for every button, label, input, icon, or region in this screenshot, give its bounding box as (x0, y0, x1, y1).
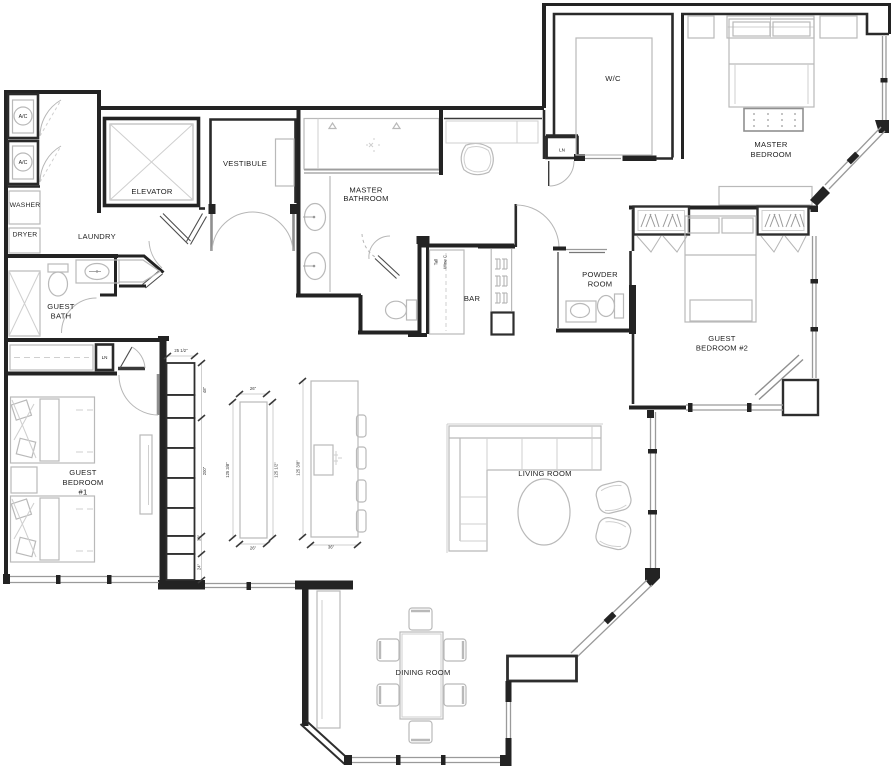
svg-text:26": 26" (250, 386, 257, 391)
svg-text:BATH: BATH (51, 312, 72, 321)
svg-text:MASTER: MASTER (754, 140, 787, 149)
svg-text:VESTIBULE: VESTIBULE (223, 159, 267, 168)
svg-text:BEDROOM #2: BEDROOM #2 (696, 344, 748, 353)
svg-text:24": 24" (197, 563, 202, 570)
svg-text:ELEVATOR: ELEVATOR (131, 187, 173, 196)
svg-text:DINING ROOM: DINING ROOM (395, 668, 450, 677)
svg-text:48": 48" (202, 386, 207, 393)
svg-text:LAUNDRY: LAUNDRY (78, 232, 116, 241)
svg-text:A/C: A/C (19, 160, 28, 166)
svg-text:36": 36" (328, 545, 335, 550)
svg-text:ROOM: ROOM (588, 280, 613, 289)
svg-text:25 1/2": 25 1/2" (174, 348, 188, 353)
svg-text:Wine C: Wine C (443, 255, 448, 269)
svg-text:125 1/2": 125 1/2" (274, 462, 279, 478)
svg-text:LN: LN (559, 148, 565, 153)
svg-text:A/C: A/C (19, 114, 28, 120)
svg-text:LIVING ROOM: LIVING ROOM (518, 469, 571, 478)
svg-text:BEDROOM: BEDROOM (63, 478, 104, 487)
svg-text:LN: LN (102, 355, 108, 360)
svg-text:125 3/8": 125 3/8" (225, 462, 230, 478)
svg-text:DRYER: DRYER (13, 232, 38, 239)
svg-text:W/C: W/C (605, 74, 621, 83)
svg-text:BATHROOM: BATHROOM (343, 194, 388, 203)
svg-text:GUEST: GUEST (69, 468, 97, 477)
svg-text:POWDER: POWDER (582, 270, 618, 279)
svg-text:30": 30" (197, 534, 202, 541)
svg-text:125 3/8": 125 3/8" (296, 460, 301, 476)
svg-text:#1: #1 (79, 488, 88, 497)
svg-text:Tall: Tall (434, 259, 439, 265)
svg-text:WASHER: WASHER (10, 202, 41, 209)
svg-text:GUEST: GUEST (47, 302, 75, 311)
svg-text:GUEST: GUEST (708, 334, 736, 343)
svg-text:200": 200" (202, 466, 207, 475)
svg-text:BEDROOM: BEDROOM (751, 150, 792, 159)
svg-text:26": 26" (250, 546, 257, 551)
svg-text:BAR: BAR (464, 294, 481, 303)
